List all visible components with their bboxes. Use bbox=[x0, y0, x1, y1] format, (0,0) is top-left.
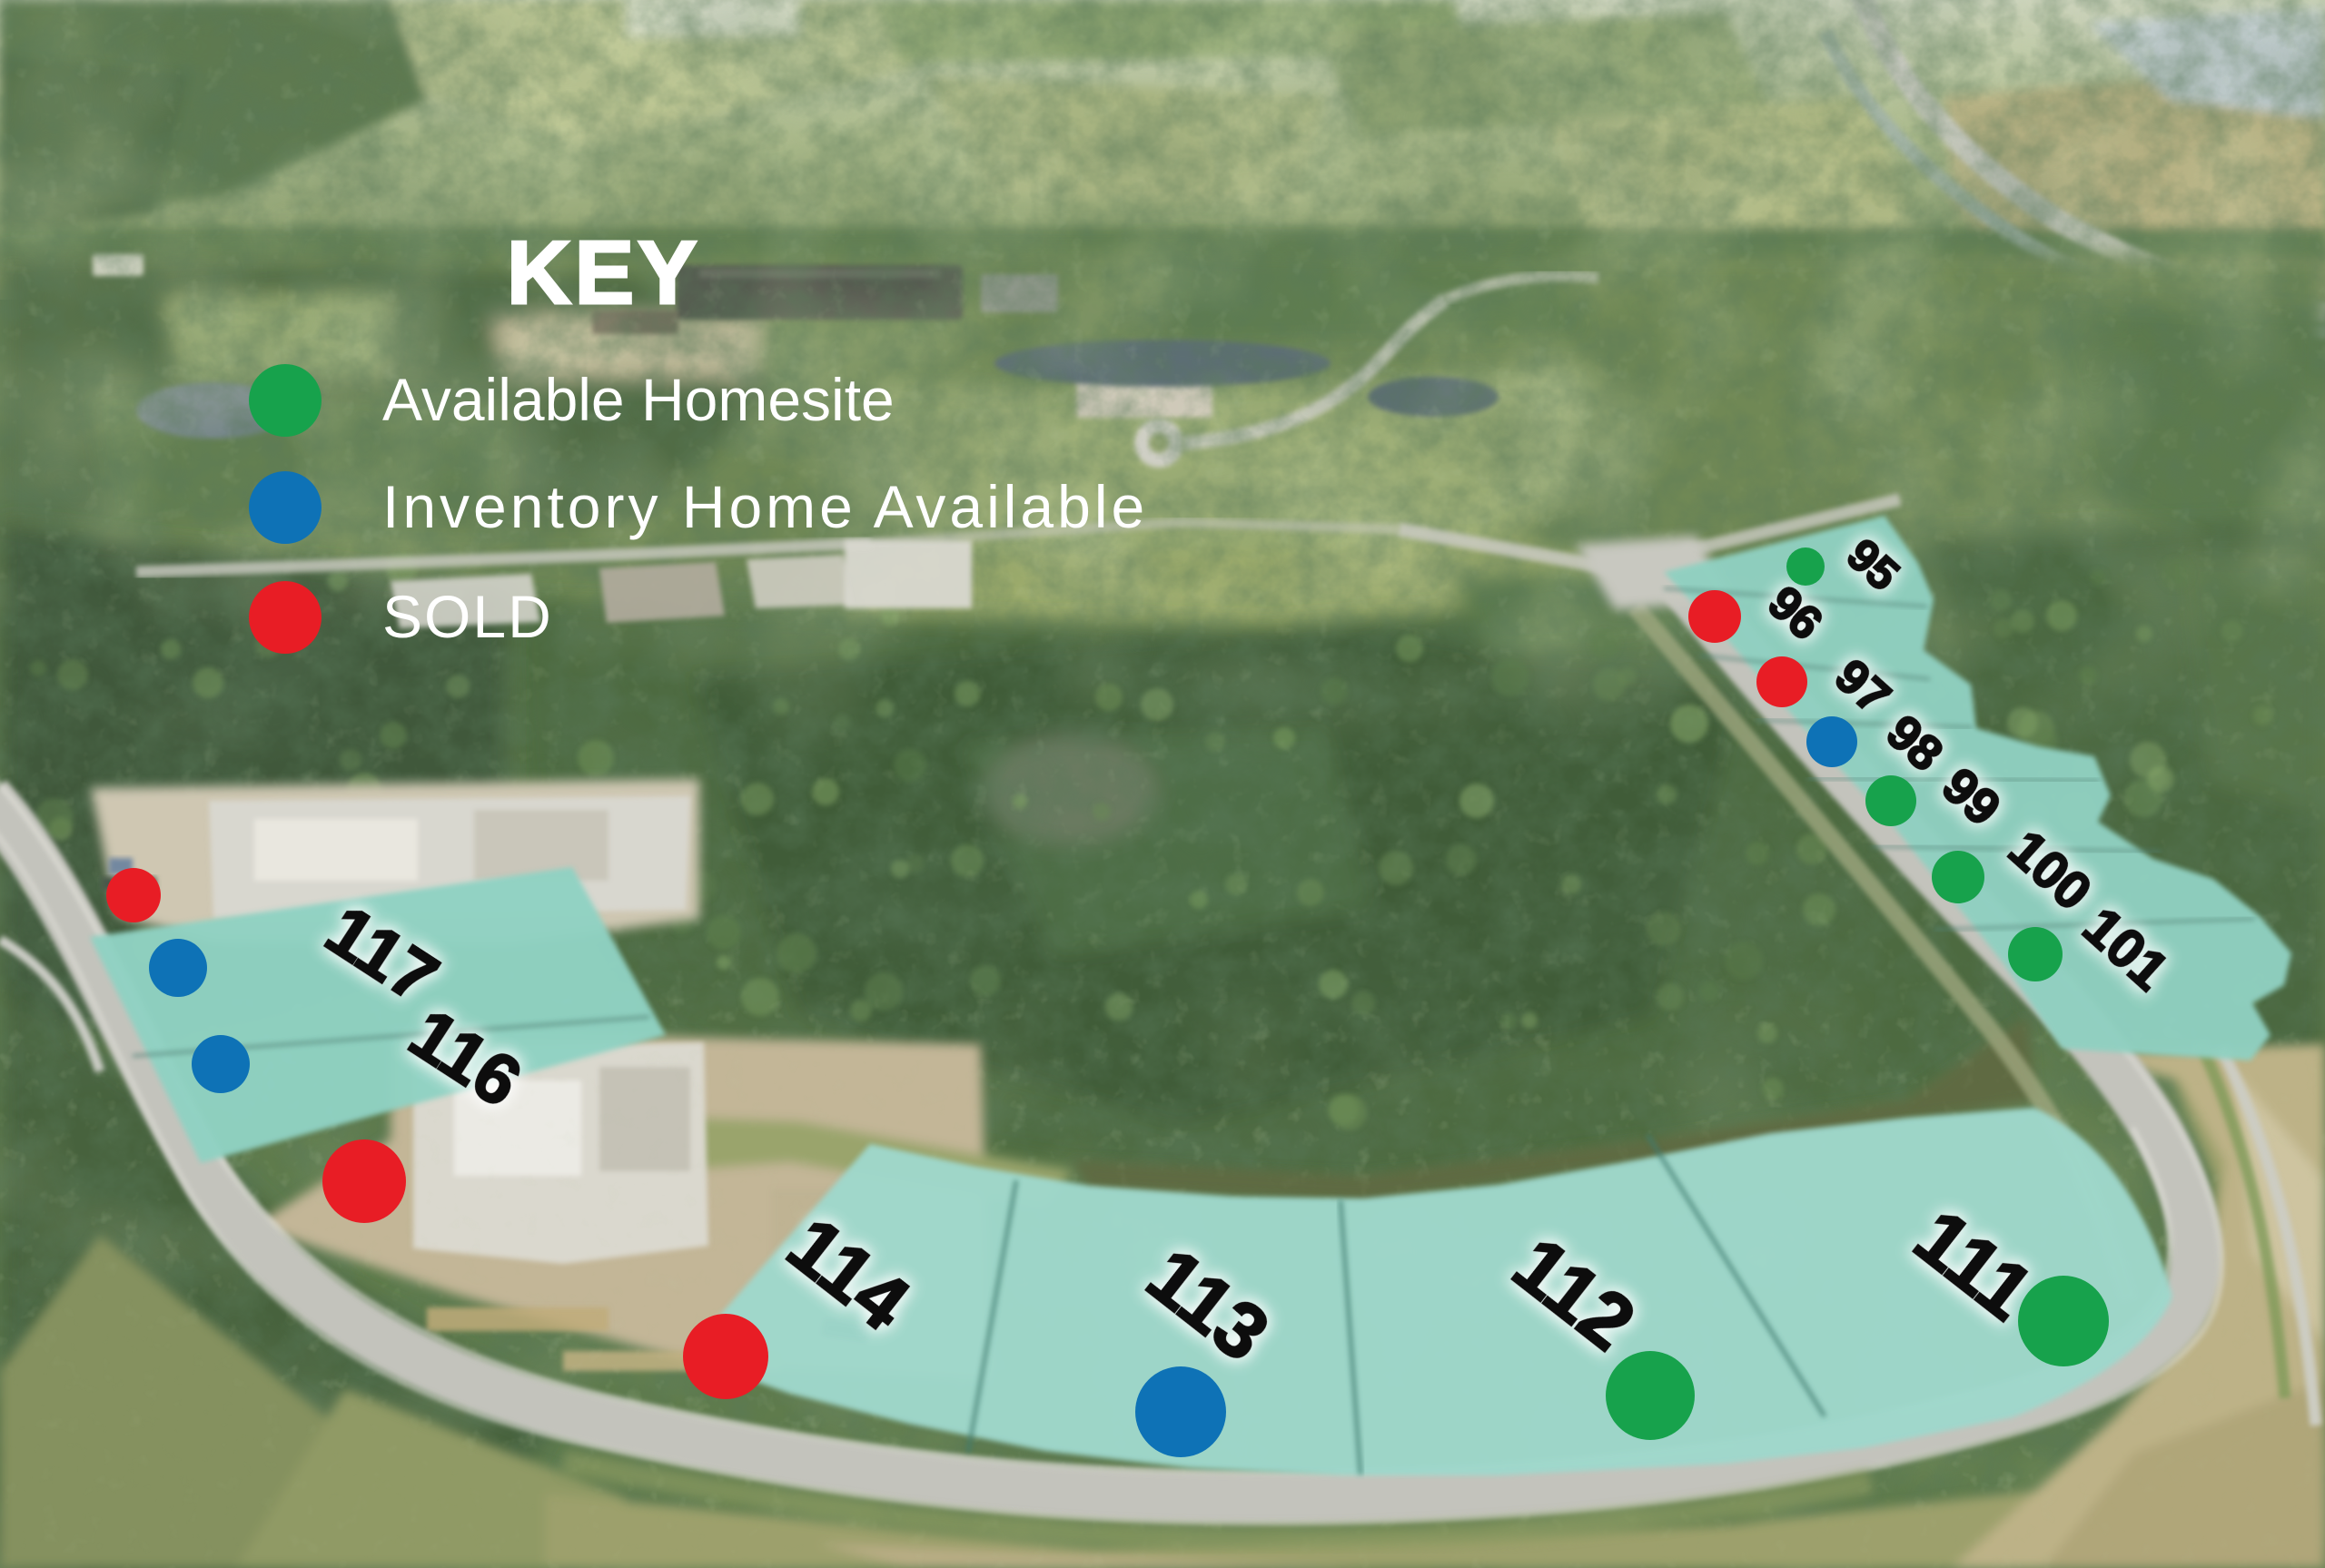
svg-text:KEY: KEY bbox=[507, 222, 701, 322]
svg-text:Inventory Home Available: Inventory Home Available bbox=[382, 473, 1148, 540]
svg-text:SOLD: SOLD bbox=[382, 583, 553, 650]
svg-text:Available Homesite: Available Homesite bbox=[382, 366, 895, 433]
